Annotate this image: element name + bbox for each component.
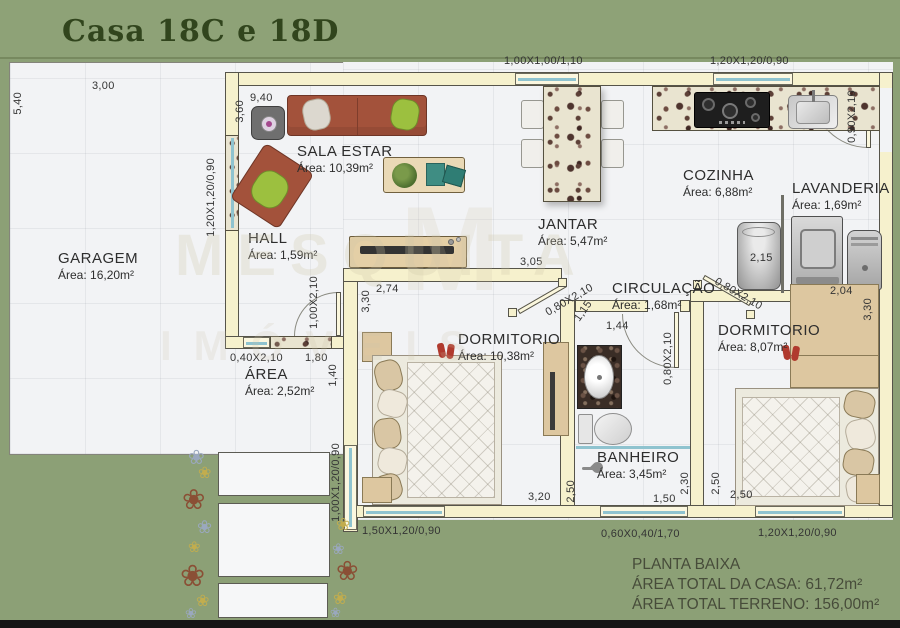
dining-table xyxy=(543,86,601,202)
dim-dorm2-w: 2,04 xyxy=(830,285,853,297)
flower-icon: ❀ xyxy=(333,590,347,607)
tv-icon xyxy=(360,246,454,254)
coffee-table xyxy=(383,157,465,193)
room-label-cozinha: COZINHA Área: 6,88m² xyxy=(683,167,754,199)
dim-door-lavanderia: 0,90X2,10 xyxy=(846,90,858,143)
wall-dorm1-top xyxy=(343,268,562,282)
decor-book2-icon xyxy=(442,165,466,188)
room-label-circulacao: CIRCULAÇÃO Área: 1,68m² xyxy=(612,280,715,312)
dim-dorm1-bh: 2,50 xyxy=(565,480,577,503)
window-dorm1-bottom xyxy=(363,506,445,517)
flower-icon: ❀ xyxy=(185,606,197,620)
dim-dorm1-w: 2,74 xyxy=(376,283,399,295)
flower-icon: ❀ xyxy=(198,466,211,482)
window-dorm1-left xyxy=(344,445,357,530)
toilet-icon xyxy=(578,413,636,446)
dim-win-banheiro-bottom: 0,60X0,40/1,70 xyxy=(601,528,680,540)
speaker-icon xyxy=(251,106,285,140)
faucet-icon xyxy=(812,90,815,102)
plan-footer: PLANTA BAIXA ÁREA TOTAL DA CASA: 61,72m²… xyxy=(632,555,879,615)
dim-area-h: 1,40 xyxy=(327,364,339,387)
dim-win-dorm1-bottom: 1,50X1,20/0,90 xyxy=(362,525,441,537)
door-lavanderia-opening xyxy=(880,88,892,152)
window-area-small xyxy=(243,337,270,348)
plan-title: Casa 18C e 18D xyxy=(62,14,339,49)
dining-chair xyxy=(521,100,544,129)
dim-jantar-w: 3,05 xyxy=(520,256,543,268)
dim-win-sala-left: 1,20X1,20/0,90 xyxy=(205,158,217,237)
dim-banheiro-w: 1,50 xyxy=(653,493,676,505)
bottom-border xyxy=(0,620,900,628)
door-dorm1-post-b xyxy=(558,278,567,287)
dim-lavanderia-w: 2,15 xyxy=(750,252,773,264)
dim-win-dorm1-left: 1,00X1,20/0,90 xyxy=(330,443,342,522)
driveway-paver xyxy=(218,583,328,618)
counter-area-tank xyxy=(270,336,332,349)
footer-line2: ÁREA TOTAL DA CASA: 61,72m² xyxy=(632,575,879,595)
tv-rack xyxy=(349,236,467,268)
dim-win-jantar-top: 1,00X1,00/1,10 xyxy=(504,55,583,67)
wardrobe-handle xyxy=(550,372,555,430)
door-hall-leaf xyxy=(336,292,341,336)
room-label-garagem: GARAGEM Área: 16,20m² xyxy=(58,250,138,282)
room-label-dormitorio2: DORMITORIO Área: 8,07m² xyxy=(718,322,820,354)
driveway-paver xyxy=(218,452,330,496)
dim-sala-w: 9,40 xyxy=(250,92,273,104)
dim-dorm1-bw: 3,20 xyxy=(528,491,551,503)
door-banheiro-leaf xyxy=(674,312,679,368)
laundry-appliance-icon xyxy=(847,230,882,290)
flower-icon: ❀ xyxy=(330,606,341,619)
dim-banheiro-h: 2,30 xyxy=(679,472,691,495)
room-label-dormitorio1: DORMITORIO Área: 10,38m² xyxy=(458,331,560,363)
door-dorm2-post-b xyxy=(746,310,755,319)
dim-dorm2-bw: 2,50 xyxy=(730,489,753,501)
dim-area-w: 1,80 xyxy=(305,352,328,364)
flower-icon: ❀ xyxy=(196,594,209,610)
flower-icon: ❀ xyxy=(188,540,201,555)
nightstand xyxy=(856,474,880,504)
wall-banheiro-dorm2 xyxy=(690,300,704,518)
flower-icon: ❀ xyxy=(197,518,212,536)
footer-line3: ÁREA TOTAL TERRENO: 156,00m² xyxy=(632,595,879,615)
dining-chair xyxy=(521,139,544,168)
room-label-lavanderia: LAVANDERIA Área: 1,69m² xyxy=(792,180,890,212)
window-sala-left xyxy=(225,135,239,231)
flower-icon: ❀ xyxy=(182,486,205,514)
kitchen-sink xyxy=(788,95,838,129)
room-label-hall: HALL Área: 1,59m² xyxy=(248,230,317,262)
floor-plan-canvas: Casa 18C e 18D xyxy=(0,0,900,628)
room-label-area: ÁREA Área: 2,52m² xyxy=(245,366,314,398)
dim-door-hall: 1,00X2,10 xyxy=(308,276,320,329)
dim-win-dorm2-bottom: 1,20X1,20/0,90 xyxy=(758,527,837,539)
room-label-banheiro: BANHEIRO Área: 3,45m² xyxy=(597,449,679,481)
nightstand xyxy=(362,477,392,503)
window-cozinha-top xyxy=(713,73,793,85)
footer-line1: PLANTA BAIXA xyxy=(632,555,879,575)
dim-dorm1-h: 3,30 xyxy=(360,290,372,313)
dim-dorm2-lh: 2,50 xyxy=(710,472,722,495)
dim-lot-h: 5,40 xyxy=(12,92,24,115)
decor-book-icon xyxy=(426,163,445,186)
dim-win-cozinha-top: 1,20X1,20/0,90 xyxy=(710,55,789,67)
door-dorm1-post-a xyxy=(508,308,517,317)
washer-icon xyxy=(791,216,843,292)
window-dorm2-bottom xyxy=(755,506,845,517)
dining-chair xyxy=(601,100,624,129)
driveway-paver xyxy=(218,503,330,577)
dim-sala-h: 3,60 xyxy=(234,100,246,123)
dining-chair xyxy=(601,139,624,168)
room-label-sala: SALA ESTAR Área: 10,39m² xyxy=(297,143,393,175)
lavanderia-partition xyxy=(781,195,784,293)
bathroom-counter xyxy=(577,345,622,409)
dim-dorm2-h: 3,30 xyxy=(862,298,874,321)
flower-icon: ❀ xyxy=(180,562,205,592)
dim-door-banheiro: 0,80X2,10 xyxy=(662,332,674,385)
room-label-jantar: JANTAR Área: 5,47m² xyxy=(538,216,607,248)
plant-icon xyxy=(392,163,417,188)
window-jantar-top xyxy=(515,73,579,85)
dim-circ-2: 1,44 xyxy=(606,320,629,332)
window-banheiro-bottom xyxy=(600,506,688,517)
flower-icon: ❀ xyxy=(332,542,345,557)
dim-lot-w: 3,00 xyxy=(92,80,115,92)
cooktop-icon xyxy=(694,92,770,128)
flower-icon: ❀ xyxy=(336,558,359,585)
dim-door-area: 0,40X2,10 xyxy=(230,352,283,364)
